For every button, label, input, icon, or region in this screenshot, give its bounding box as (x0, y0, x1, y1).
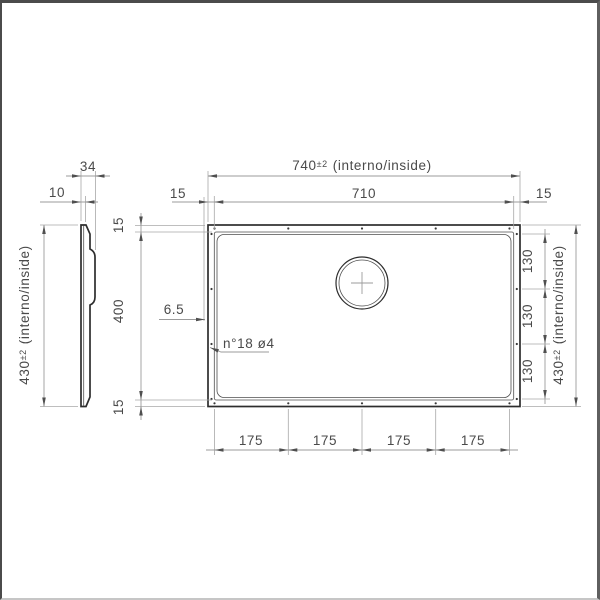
side-view-extension-lines (40, 171, 96, 407)
plan-view (208, 225, 520, 407)
dim-margin-right: 15 (536, 186, 552, 201)
dim-hole-spacing-h-3: 175 (387, 433, 411, 448)
technical-drawing: 34 10 430±2(interno/inside) (2, 3, 597, 598)
dim-inner-width: 710 (352, 186, 376, 201)
dim-margin-bottom: 15 (111, 399, 126, 415)
drain-center-mark (351, 272, 373, 294)
outer-rim-outline (208, 225, 520, 407)
dim-hole-spacing-v-3: 130 (520, 359, 535, 383)
side-view (81, 225, 95, 407)
dim-plan-height: 430±2(interno/inside) (551, 245, 566, 384)
plan-view-arrowheads (139, 174, 578, 452)
dim-flange-depth: 10 (49, 185, 65, 200)
side-profile-outline (81, 225, 95, 407)
dim-hole-spacing-h-1: 175 (239, 433, 263, 448)
dim-inner-height: 400 (111, 299, 126, 323)
dim-depth-total: 34 (80, 159, 96, 174)
dim-side-height: 430±2(interno/inside) (17, 245, 32, 384)
drawing-canvas: 34 10 430±2(interno/inside) (0, 0, 600, 600)
dim-total-width: 740±2(interno/inside) (292, 158, 431, 173)
mounting-holes (210, 227, 518, 404)
bowl-edge-outline (217, 235, 511, 398)
dim-hole-spacing-h-4: 175 (461, 433, 485, 448)
dim-hole-spacing-h-2: 175 (313, 433, 337, 448)
dim-edge-offset: 6.5 (164, 302, 185, 317)
dim-hole-spacing-v-1: 130 (520, 249, 535, 273)
dim-margin-left: 15 (170, 186, 186, 201)
dim-margin-top: 15 (111, 217, 126, 233)
holes-note-label: n°18 ø4 (223, 336, 275, 351)
side-view-dimension-lines (40, 176, 110, 407)
dim-hole-spacing-v-2: 130 (520, 304, 535, 328)
